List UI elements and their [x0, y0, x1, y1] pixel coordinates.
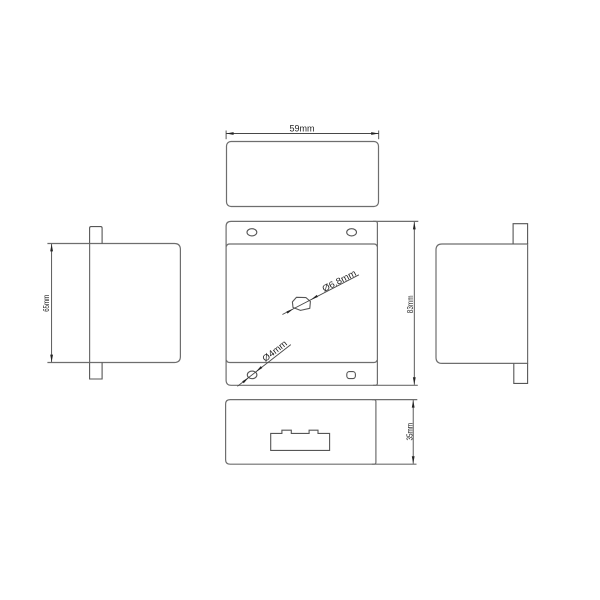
svg-text:65mm: 65mm [41, 295, 51, 312]
svg-text:83mm: 83mm [405, 295, 415, 313]
svg-text:59mm: 59mm [289, 124, 314, 134]
svg-text:35mm: 35mm [405, 423, 415, 441]
svg-text:Ø4mm: Ø4mm [260, 338, 289, 363]
svg-text:Ø6.8mm: Ø6.8mm [320, 268, 357, 294]
